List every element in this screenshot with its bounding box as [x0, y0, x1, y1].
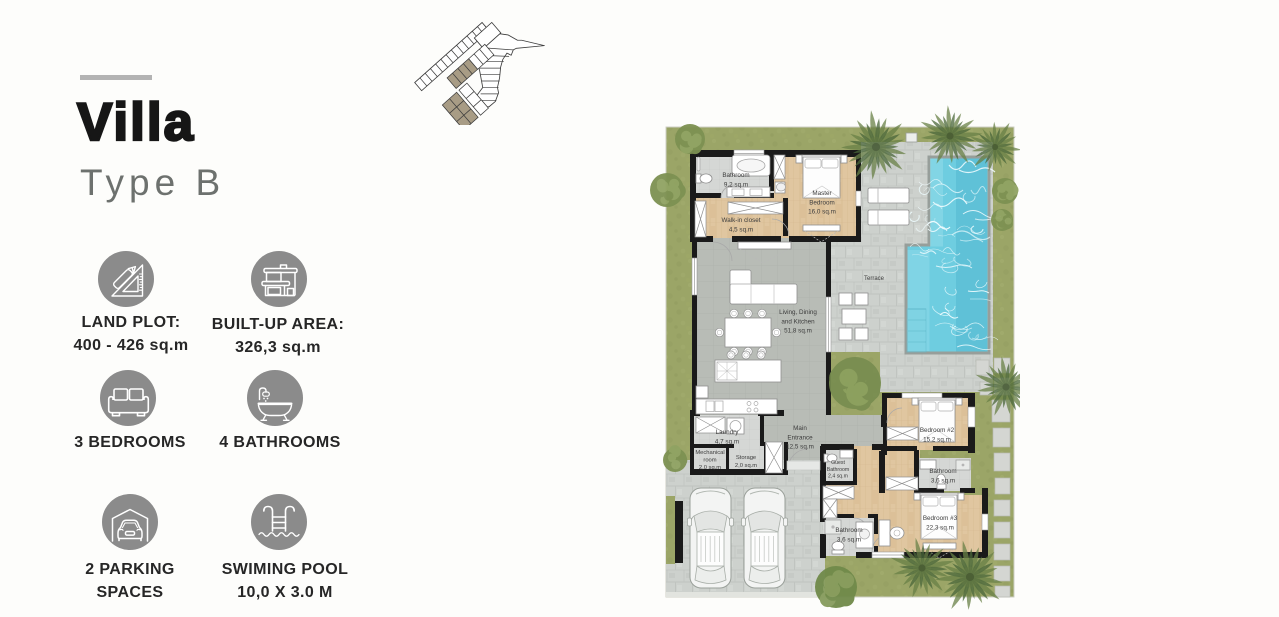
svg-text:15,2 sq.m: 15,2 sq.m — [923, 436, 951, 443]
svg-text:16,0 sq.m: 16,0 sq.m — [808, 209, 836, 216]
svg-text:22,3 sq.m: 22,3 sq.m — [926, 524, 954, 531]
svg-text:2,0 sq.m: 2,0 sq.m — [699, 465, 721, 471]
svg-text:Entrance: Entrance — [787, 434, 813, 441]
svg-text:and Kitchen: and Kitchen — [781, 318, 815, 325]
svg-text:9,2 sq.m: 9,2 sq.m — [724, 181, 748, 188]
svg-text:Bathroom: Bathroom — [929, 468, 956, 475]
svg-text:Living, Dining: Living, Dining — [779, 309, 817, 316]
svg-text:Main: Main — [793, 425, 807, 432]
svg-text:4,7 sq.m: 4,7 sq.m — [715, 438, 739, 445]
svg-text:4,5 sq.m: 4,5 sq.m — [729, 226, 753, 233]
svg-text:Storage: Storage — [736, 455, 756, 461]
svg-text:2,4 sq.m: 2,4 sq.m — [828, 474, 848, 480]
svg-text:3,6 sq.m: 3,6 sq.m — [837, 536, 861, 543]
svg-text:Mechanical: Mechanical — [695, 450, 724, 456]
svg-text:12,5 sq.m: 12,5 sq.m — [786, 444, 814, 451]
svg-text:Bedroom #2: Bedroom #2 — [920, 427, 955, 434]
svg-text:Walk-in closet: Walk-in closet — [722, 217, 761, 224]
svg-text:Bathroom: Bathroom — [722, 172, 749, 179]
svg-text:Laundry: Laundry — [716, 429, 740, 436]
svg-text:room: room — [703, 458, 716, 464]
svg-text:Master: Master — [812, 190, 831, 197]
svg-text:3,6 sq.m: 3,6 sq.m — [931, 477, 955, 484]
svg-text:Terrace: Terrace — [864, 276, 885, 282]
svg-text:Bathroom: Bathroom — [827, 467, 850, 473]
svg-text:Bedroom #3: Bedroom #3 — [923, 515, 958, 522]
svg-text:Bedroom: Bedroom — [809, 199, 835, 206]
svg-text:Bathroom: Bathroom — [835, 527, 862, 534]
svg-text:Guest: Guest — [831, 460, 845, 466]
svg-text:51,8 sq.m: 51,8 sq.m — [784, 328, 812, 335]
svg-text:2,0 sq.m: 2,0 sq.m — [735, 463, 757, 469]
